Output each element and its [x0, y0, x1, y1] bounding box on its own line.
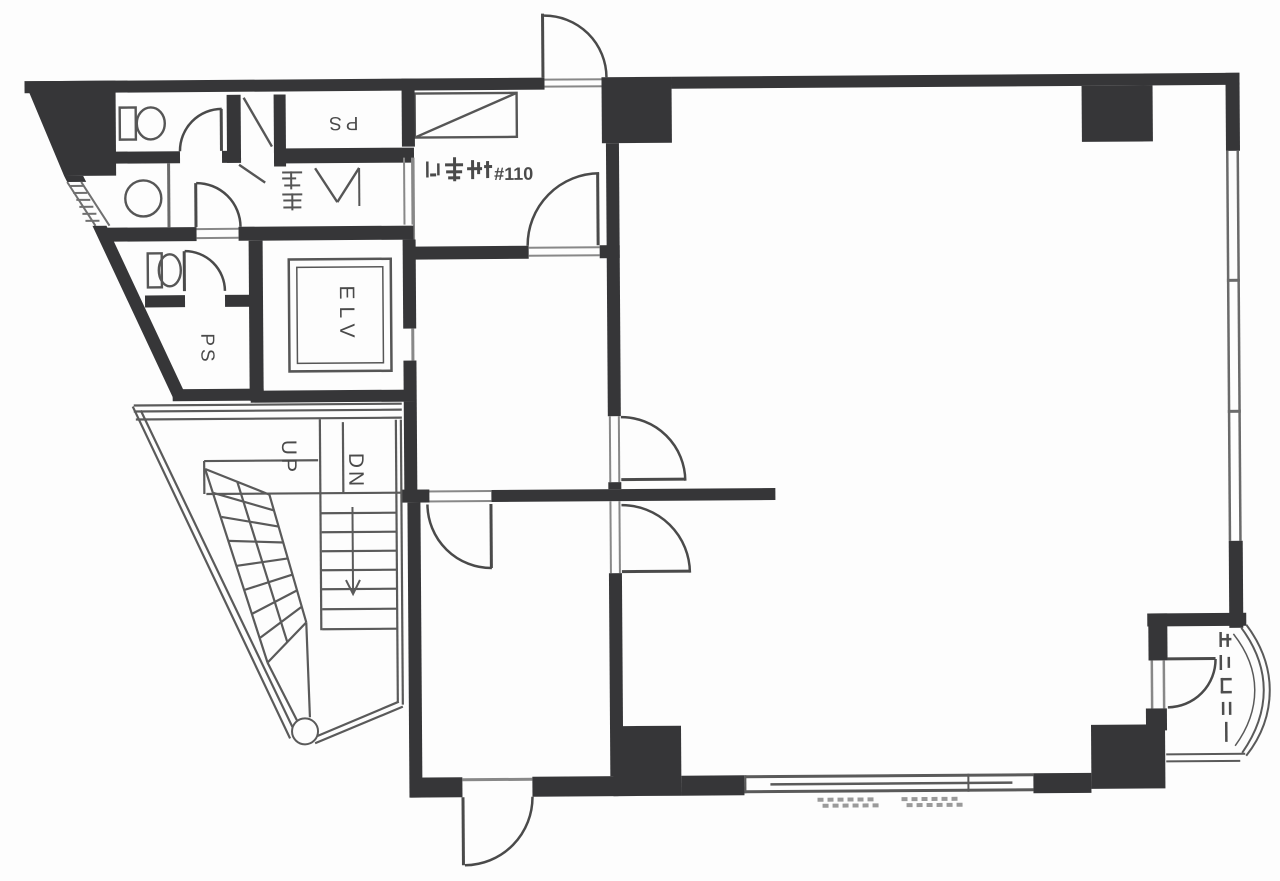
svg-text:PS: PS — [196, 333, 217, 365]
svg-text:PS: PS — [325, 112, 359, 133]
svg-text:#110: #110 — [494, 164, 533, 184]
svg-text:ELV: ELV — [335, 285, 358, 344]
svg-text:DN: DN — [344, 453, 367, 490]
svg-text:UP: UP — [277, 440, 300, 475]
